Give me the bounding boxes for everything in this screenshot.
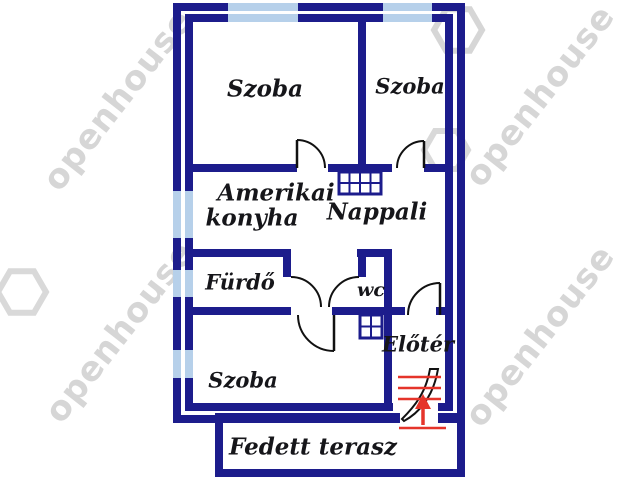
inner-wall-bottom <box>185 403 393 411</box>
door-arc-nappali-foyer <box>408 283 440 315</box>
door-arc-bottom-room <box>298 315 334 351</box>
room-label-terrace: Fedett terasz <box>229 434 397 461</box>
room-label-kitchen-line1: Amerikai <box>217 180 334 207</box>
room-label-wc: wc <box>357 279 385 301</box>
wall-nappali-foyer <box>436 307 453 315</box>
room-label-eloter: Előtér <box>382 332 454 357</box>
wall-foyer-left <box>384 257 392 403</box>
outer-wall-top <box>173 3 228 11</box>
wall-bathroom-bottomroom <box>193 307 291 315</box>
window-bathroom <box>185 270 193 297</box>
outer-wall-bottom <box>438 415 465 423</box>
window-top-right-room <box>383 14 432 22</box>
wall-bathroom-right-stub <box>283 257 291 277</box>
door-arc-bathroom <box>291 277 321 307</box>
window-top-left-room <box>228 14 298 22</box>
room-label-furdo: Fürdő <box>205 270 275 295</box>
door-arc-top-left-room <box>297 140 325 168</box>
wall-between-top-rooms <box>358 22 366 172</box>
wall-wc-left-stub <box>358 257 366 277</box>
room-label-szoba-bottom: Szoba <box>208 368 277 393</box>
outer-wall-bottom <box>173 415 400 423</box>
window-top-left-room <box>228 3 298 11</box>
wall-wc-top <box>357 249 392 257</box>
room-label-kitchen-line2: konyha <box>206 205 299 232</box>
window-top-right-room <box>383 3 432 11</box>
window-bottom-room <box>185 350 193 378</box>
window-bathroom <box>173 270 181 297</box>
room-label-szoba-top-right: Szoba <box>375 74 444 99</box>
wall-kitchen-bathroom <box>193 249 291 257</box>
floor-plan-drawing <box>0 0 640 480</box>
window-kitchen <box>173 191 181 238</box>
room-label-nappali: Nappali <box>327 199 427 226</box>
door-arc-top-right-room <box>397 141 424 168</box>
inner-wall-bottom <box>438 403 453 411</box>
outer-wall-top <box>298 3 383 11</box>
window-bottom-room <box>173 350 181 378</box>
outer-wall-right <box>457 3 465 423</box>
window-kitchen <box>185 191 193 238</box>
door-arc-wc <box>329 277 359 307</box>
floor-plan-image: openhouse openhouse openhouse openhouse <box>0 0 640 480</box>
room-label-szoba-top-left: Szoba <box>227 76 303 103</box>
wall-rooms-kitchen <box>424 164 445 172</box>
wall-rooms-kitchen <box>193 164 297 172</box>
inner-wall-top <box>298 14 383 22</box>
